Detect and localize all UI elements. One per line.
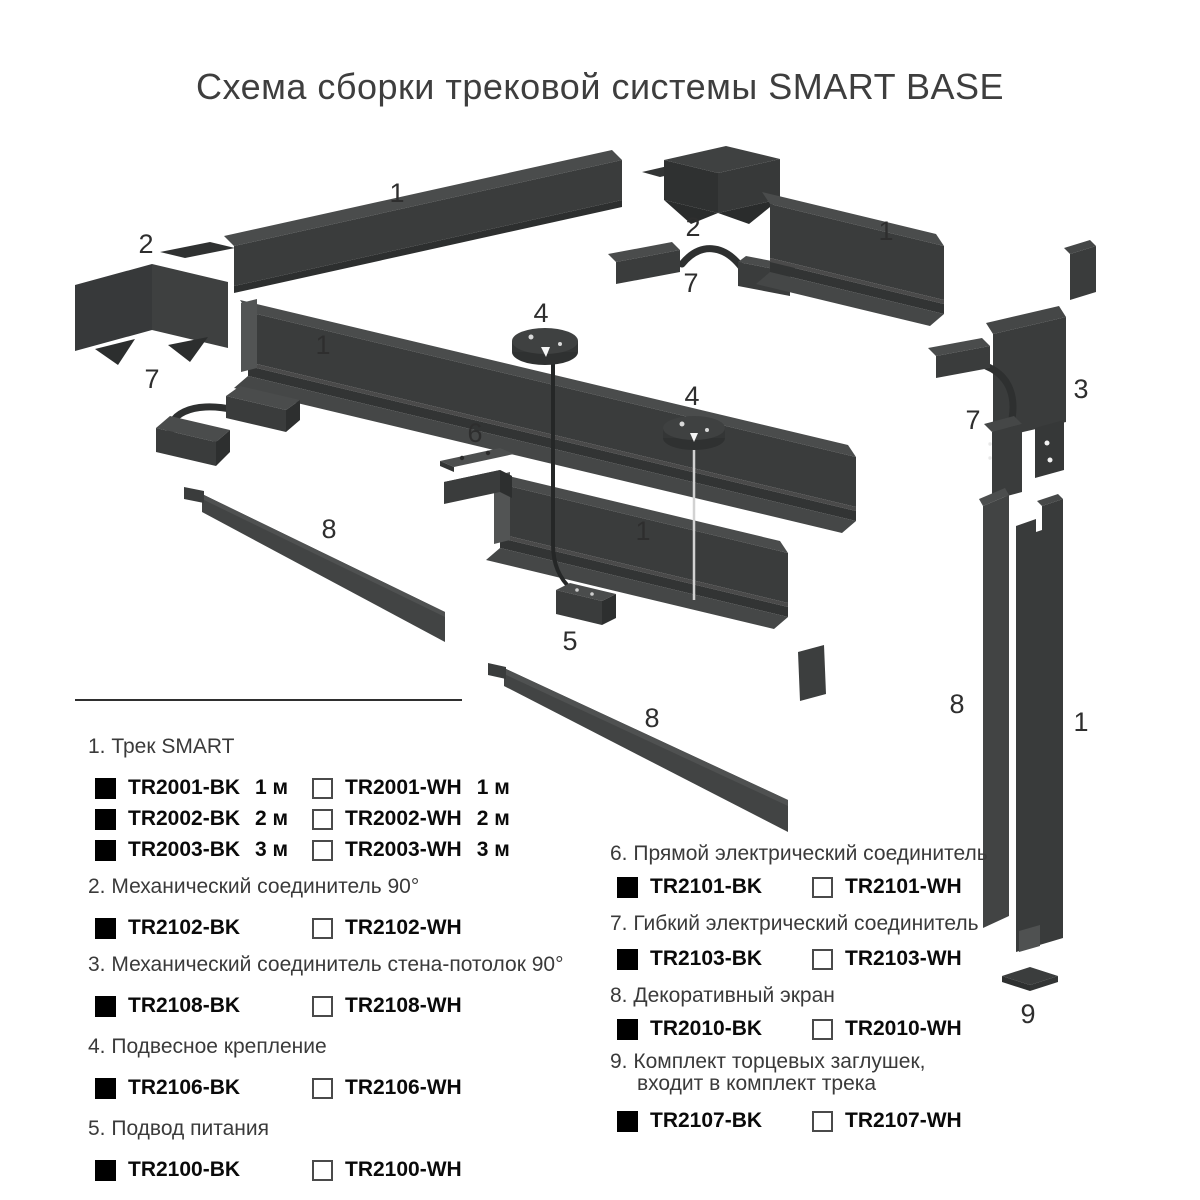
white-variant-checkbox	[312, 778, 333, 799]
corner-connector-left	[75, 242, 235, 365]
product-code: TR2101-BK	[650, 875, 762, 899]
callout-wall-ceiling-connector: 3	[1073, 374, 1088, 404]
legend-left-column: 1. Трек SMART TR2001-BK1 м TR2001-WH1 м …	[88, 736, 568, 1189]
white-variant-checkbox	[312, 809, 333, 830]
flexible-connector-middle	[608, 242, 798, 296]
plate	[440, 448, 514, 467]
white-variant-checkbox	[312, 840, 333, 861]
black-variant-checkbox	[95, 996, 116, 1017]
legend-row: TR2001-BK1 м TR2001-WH1 м	[88, 776, 568, 800]
legend-row: TR2010-BK TR2010-WH	[610, 1017, 1110, 1041]
black-variant-checkbox	[617, 1111, 638, 1132]
foot-plate	[1035, 420, 1064, 478]
product-code: TR2107-BK	[650, 1109, 762, 1133]
legend-section-header: 7. Гибкий электрический соединитель	[610, 913, 1110, 935]
product-code: TR2100-BK	[128, 1158, 240, 1182]
power-feed	[556, 583, 616, 625]
callout-pendant: 4	[684, 381, 699, 411]
legend-section-header: 8. Декоративный экран	[610, 985, 1110, 1007]
white-variant-checkbox	[812, 1019, 833, 1040]
hole	[1045, 441, 1050, 446]
hole	[988, 456, 991, 459]
length-label: 2 м	[255, 807, 288, 831]
hole	[1048, 458, 1053, 463]
black-variant-checkbox	[95, 1078, 116, 1099]
product-code: TR2003-WH	[345, 838, 462, 862]
callout-track: 1	[635, 516, 650, 546]
product-code: TR2001-BK	[128, 776, 240, 800]
product-code: TR2001-WH	[345, 776, 462, 800]
product-code: TR2101-WH	[845, 875, 962, 899]
screw-hole	[558, 342, 562, 346]
legend-section-header: 5. Подвод питания	[88, 1118, 568, 1140]
screw-hole	[705, 428, 709, 432]
right-wing	[152, 264, 228, 348]
white-variant-checkbox	[312, 1160, 333, 1181]
legend-section-header: 3. Механический соединитель стена-потоло…	[88, 954, 568, 976]
assembly-scheme-page: Схема сборки трековой системы SMART BASE	[0, 0, 1200, 1200]
black-variant-checkbox	[95, 1160, 116, 1181]
callout-power-feed: 5	[562, 626, 577, 656]
product-code: TR2002-BK	[128, 807, 240, 831]
callout-screen: 8	[321, 514, 336, 544]
length-label: 3 м	[477, 838, 510, 862]
white-variant-checkbox	[812, 1111, 833, 1132]
legend-row: TR2100-BK TR2100-WH	[88, 1158, 568, 1182]
legend-section-header: 9. Комплект торцевых заглушек,	[610, 1051, 1110, 1073]
legend-section-header: 4. Подвесное крепление	[88, 1036, 568, 1058]
legend-row: TR2101-BK TR2101-WH	[610, 875, 1110, 899]
callout-track: 1	[315, 330, 330, 360]
legend-row: TR2107-BK TR2107-WH	[610, 1109, 1110, 1133]
hole	[460, 456, 464, 460]
white-variant-checkbox	[812, 877, 833, 898]
product-code: TR2100-WH	[345, 1158, 462, 1182]
hole	[486, 451, 490, 455]
length-label: 3 м	[255, 838, 288, 862]
length-label: 1 м	[255, 776, 288, 800]
callout-track: 1	[878, 216, 893, 246]
end-face	[241, 299, 257, 372]
black-variant-checkbox	[95, 809, 116, 830]
black-variant-checkbox	[617, 1019, 638, 1040]
legend-section-header: 2. Механический соединитель 90°	[88, 876, 568, 898]
legend-row: TR2108-BK TR2108-WH	[88, 994, 568, 1018]
screw-hole	[680, 422, 685, 427]
screen-top-edge	[202, 494, 445, 617]
screen-end	[184, 487, 204, 503]
product-code: TR2108-BK	[128, 994, 240, 1018]
product-code: TR2003-BK	[128, 838, 240, 862]
black-variant-checkbox	[95, 840, 116, 861]
length-label: 1 м	[477, 776, 510, 800]
legend-row: TR2002-BK2 м TR2002-WH2 м	[88, 807, 568, 831]
hole	[988, 442, 991, 445]
track-segment-top-left	[224, 150, 622, 293]
product-code: TR2102-BK	[128, 916, 240, 940]
callout-flex-connector: 7	[965, 405, 980, 435]
callout-straight-connector: 6	[467, 418, 482, 448]
product-code: TR2002-WH	[345, 807, 462, 831]
white-variant-checkbox	[312, 1078, 333, 1099]
pin	[590, 592, 594, 596]
white-variant-checkbox	[312, 918, 333, 939]
screen-end	[488, 663, 506, 679]
box-front	[992, 424, 1022, 500]
product-code: TR2103-BK	[650, 947, 762, 971]
corner-connector-middle	[642, 146, 780, 224]
product-code: TR2107-WH	[845, 1109, 962, 1133]
legend-right-column: 6. Прямой электрический соединитель TR21…	[610, 843, 1110, 1140]
fin	[168, 337, 208, 362]
product-code: TR2010-BK	[650, 1017, 762, 1041]
callout-track: 1	[1073, 707, 1088, 737]
wire	[682, 249, 742, 268]
product-code: TR2106-WH	[345, 1076, 462, 1100]
product-code: TR2103-WH	[845, 947, 962, 971]
legend-row: TR2103-BK TR2103-WH	[610, 947, 1110, 971]
black-variant-checkbox	[95, 778, 116, 799]
black-variant-checkbox	[617, 877, 638, 898]
callout-screen: 8	[949, 689, 964, 719]
legend-row: TR2003-BK3 м TR2003-WH3 м	[88, 838, 568, 862]
screw-hole	[529, 335, 534, 340]
length-label: 2 м	[477, 807, 510, 831]
white-variant-checkbox	[312, 996, 333, 1017]
callout-pendant: 4	[533, 298, 548, 328]
legend-row: TR2102-BK TR2102-WH	[88, 916, 568, 940]
black-variant-checkbox	[95, 918, 116, 939]
left-wing	[75, 264, 152, 351]
product-code: TR2106-BK	[128, 1076, 240, 1100]
legend-divider	[75, 699, 462, 701]
legend-row: TR2106-BK TR2106-WH	[88, 1076, 568, 1100]
legend-section-header: 6. Прямой электрический соединитель	[610, 843, 1110, 865]
white-variant-checkbox	[812, 949, 833, 970]
pin	[575, 588, 579, 592]
box-front	[444, 470, 500, 504]
upper-fin	[1070, 246, 1096, 300]
product-code: TR2102-WH	[345, 916, 462, 940]
callout-flex-connector: 7	[683, 268, 698, 298]
end-cap-plate	[798, 645, 826, 701]
track-segment-top-right	[756, 192, 944, 326]
legend-section-header-line2: входит в комплект трека	[637, 1073, 1110, 1095]
flexible-connector-left	[156, 386, 300, 466]
decorative-screen-left	[184, 487, 445, 642]
legend-section-header: 1. Трек SMART	[88, 736, 568, 758]
black-variant-checkbox	[617, 949, 638, 970]
callout-screen: 8	[644, 703, 659, 733]
callout-corner: 2	[685, 212, 700, 242]
callout-flex-connector: 7	[144, 364, 159, 394]
callout-track: 1	[389, 178, 404, 208]
tongue	[160, 242, 235, 258]
product-code: TR2010-WH	[845, 1017, 962, 1041]
product-code: TR2108-WH	[345, 994, 462, 1018]
callout-corner: 2	[138, 229, 153, 259]
